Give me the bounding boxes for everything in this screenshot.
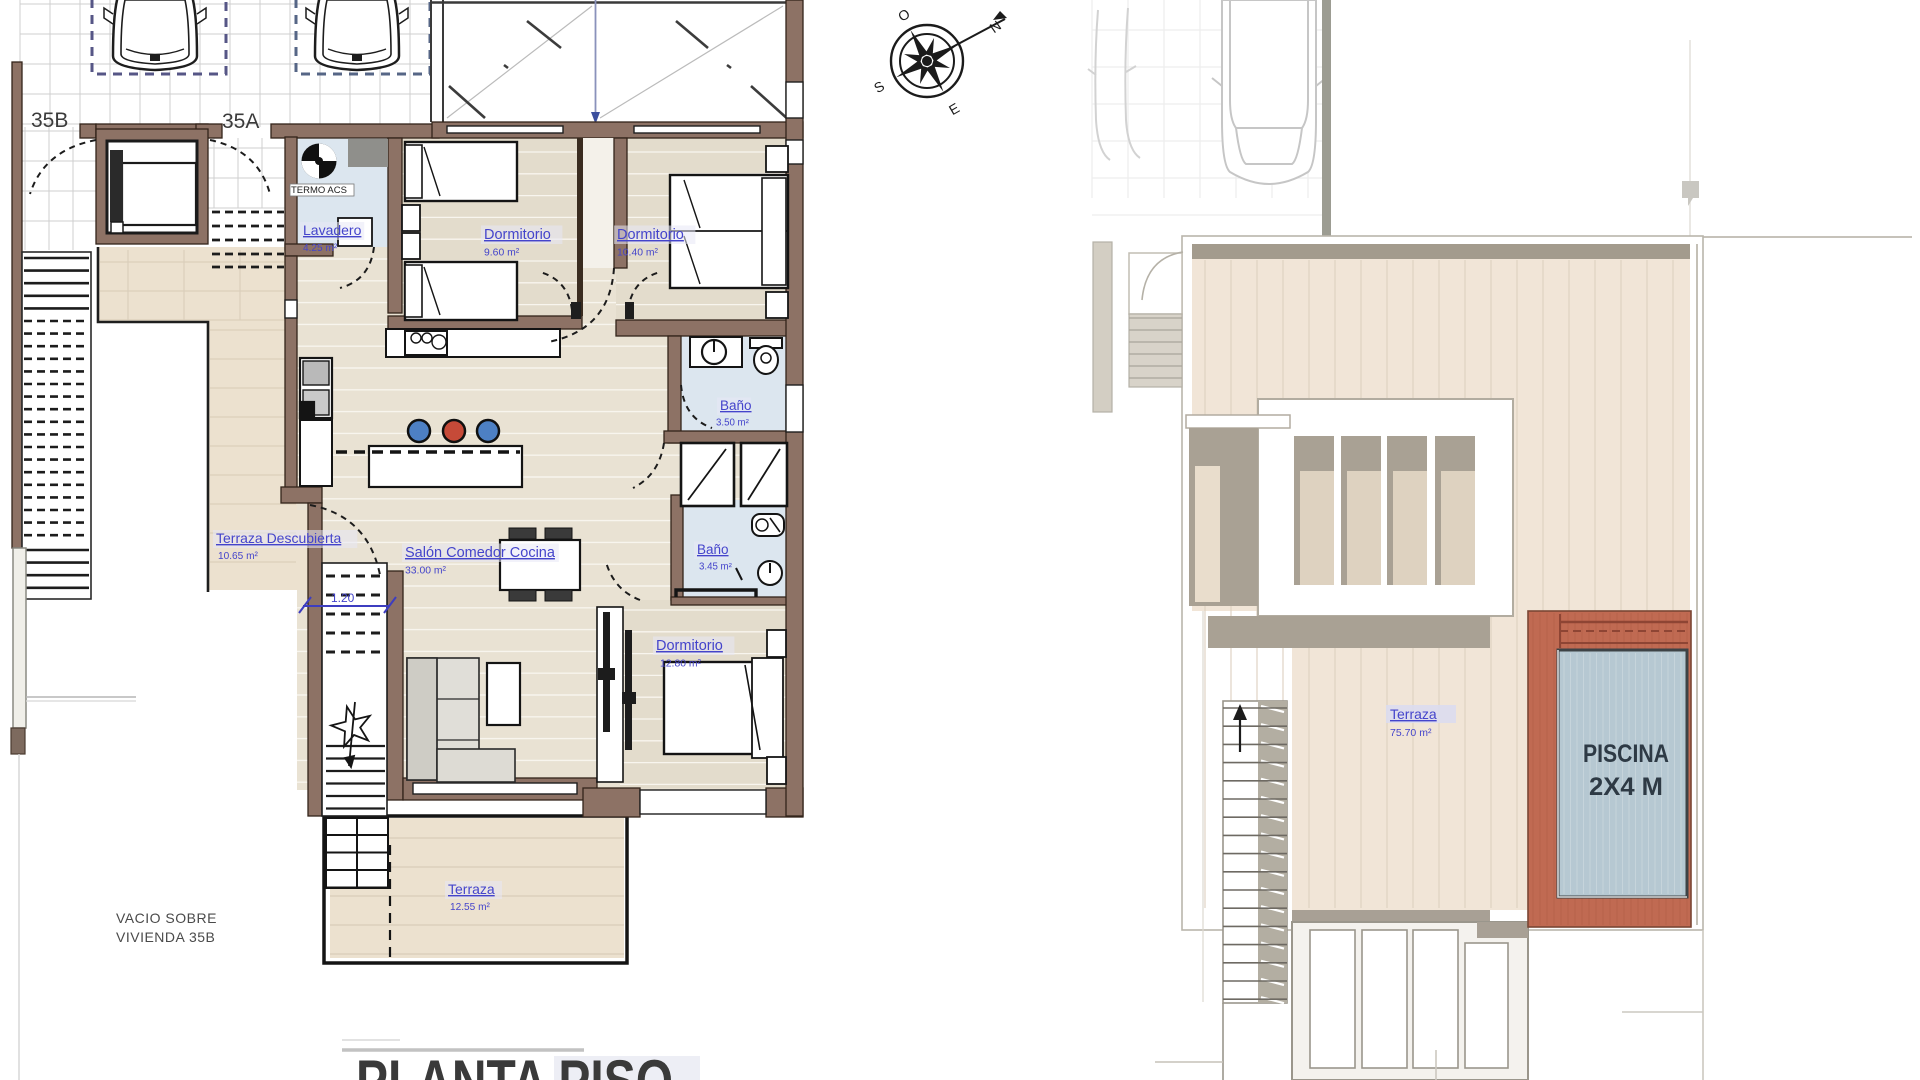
svg-text:Dormitorio: Dormitorio [656,638,723,654]
svg-text:VIVIENDA 35B: VIVIENDA 35B [116,929,215,945]
svg-text:2X4 M: 2X4 M [1589,773,1663,801]
svg-text:VACIO SOBRE: VACIO SOBRE [116,910,217,926]
svg-text:Lavadero: Lavadero [303,222,362,238]
svg-text:4.25 m²: 4.25 m² [303,243,338,254]
svg-text:Dormitorio: Dormitorio [617,227,684,243]
svg-text:PLANTA PISO: PLANTA PISO [356,1048,673,1080]
svg-text:Terraza: Terraza [448,881,495,897]
svg-text:Dormitorio: Dormitorio [484,227,551,243]
svg-text:Terraza: Terraza [1390,706,1437,722]
svg-text:Baño: Baño [720,398,752,413]
svg-text:1.20: 1.20 [331,591,355,605]
svg-text:Baño: Baño [697,542,729,557]
svg-text:9.60 m²: 9.60 m² [484,248,520,259]
svg-text:3.50 m²: 3.50 m² [716,418,750,429]
svg-text:33.00 m²: 33.00 m² [405,566,447,577]
svg-text:10.40 m²: 10.40 m² [617,248,659,259]
svg-text:35B: 35B [31,109,68,132]
svg-text:TERMO ACS: TERMO ACS [291,185,347,196]
svg-text:Salón Comedor Cocina: Salón Comedor Cocina [405,545,556,561]
svg-text:PISCINA: PISCINA [1583,740,1669,768]
svg-text:10.65 m²: 10.65 m² [218,551,258,562]
svg-text:35A: 35A [222,110,259,133]
svg-text:12.80 m²: 12.80 m² [660,659,702,670]
svg-text:12.55 m²: 12.55 m² [450,902,490,913]
svg-text:3.45 m²: 3.45 m² [699,562,733,573]
svg-text:75.70 m²: 75.70 m² [1390,727,1432,739]
svg-text:Terraza Descubierta: Terraza Descubierta [216,530,341,546]
